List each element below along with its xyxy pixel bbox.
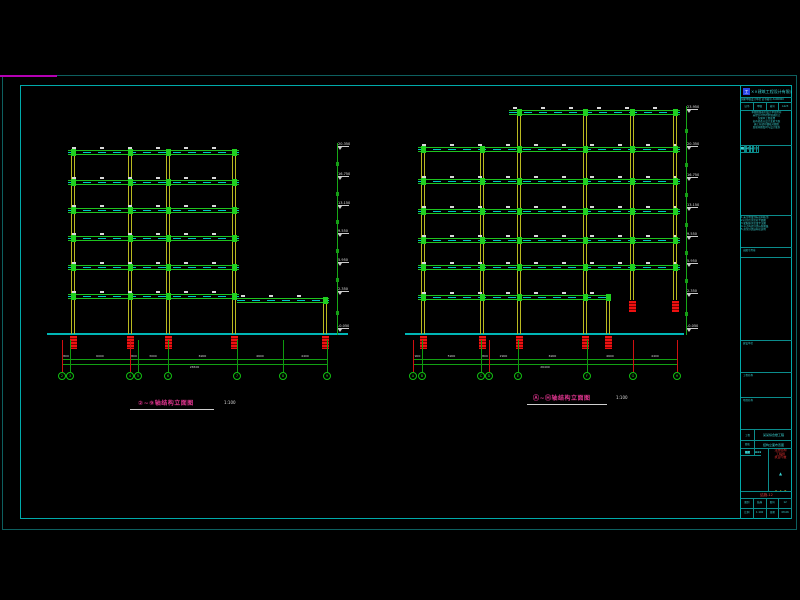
dimension-text: 2900 — [500, 355, 508, 358]
seal-box-label: 出图专用章 — [743, 249, 756, 252]
level-flag-triangle — [687, 178, 691, 181]
level-value: -0.050 — [687, 324, 703, 328]
beam-column-joint — [421, 264, 426, 271]
grid-extension-line — [422, 340, 423, 372]
bottom-cell: 12 — [779, 499, 792, 508]
drawing-number-red: 结施-12 — [741, 492, 792, 499]
beam-tick-marks — [422, 144, 676, 146]
beam-column-joint — [421, 294, 426, 301]
dimension-text: 4400 — [651, 355, 659, 358]
grid-extension-line — [413, 340, 414, 372]
level-value: 13.150 — [687, 203, 703, 207]
copyright-note-line: 发现问题及时与设计联系 — [741, 126, 792, 129]
beam-tick-marks — [422, 176, 676, 178]
beam-column-joint — [480, 264, 485, 271]
level-flag: 16.750 — [687, 173, 703, 181]
signature-table: 会 签 栏专业签名日期建筑——结构——给排水——电气——暖通——动力——总图——… — [741, 146, 792, 216]
beam-column-joint — [480, 237, 485, 244]
seal-label-row: 出图专用章 — [741, 248, 792, 258]
company-name: ××建筑工程设计有限公司 — [751, 89, 792, 94]
beam-tick-marks — [422, 206, 676, 208]
drawing-title: Ⓐ~Ⓗ轴结构立面图 — [533, 393, 591, 402]
dimension-text: 5900 — [448, 355, 456, 358]
certificate-cell: 编号 — [767, 103, 780, 110]
beam-column-joint — [606, 294, 611, 301]
name-box-label: 项目名称 — [743, 399, 753, 402]
beam-column-joint — [630, 109, 635, 116]
certificate-cell: A123 — [779, 103, 792, 110]
beam-column-joint — [673, 264, 678, 271]
hanging-column-marker — [629, 301, 636, 312]
seal-box — [741, 258, 792, 341]
beam-tick-marks — [422, 292, 607, 294]
certificate-cells: 证书甲级编号A123 — [741, 103, 792, 111]
grid-extension-line — [518, 340, 519, 372]
stamp-red-text-line: 执业印章 — [769, 456, 792, 460]
bottom-cells-row2: 比例1:100日期08.06 — [741, 509, 792, 519]
beam-column-joint — [517, 264, 522, 271]
beam-column-joint — [480, 294, 485, 301]
level-flag: -0.050 — [687, 324, 703, 332]
story-tick — [685, 223, 688, 227]
grid-bubble: A — [409, 372, 417, 380]
drawing-title-underline — [527, 404, 607, 405]
story-tick — [685, 129, 688, 133]
dimension-text: 800 — [482, 355, 488, 358]
beam-column-joint — [630, 146, 635, 153]
beam-column-joint — [421, 178, 426, 185]
level-flag-triangle — [687, 329, 691, 332]
level-value: 23.950 — [687, 105, 703, 109]
column — [630, 110, 634, 300]
title-block: 工 ××建筑工程设计有限公司 国家甲级设计单位 证书编号 A100000 证书甲… — [740, 85, 792, 519]
bottom-cell: 图号 — [767, 499, 780, 508]
grid-bubble: D — [485, 372, 493, 380]
grid-extension-line — [489, 340, 490, 372]
stamp-area: 注册结构工程师执业印章 ▲ 1.A.S 签 — [769, 449, 792, 492]
bottom-cell: 08.06 — [779, 509, 792, 519]
beam-column-joint — [673, 208, 678, 215]
bottom-cell: 比例 — [741, 509, 754, 519]
ground-line — [405, 333, 684, 335]
elevation-drawing-right: 23.95020.35016.75013.1509.5505.9502.350-… — [0, 0, 800, 600]
copyright-notes: 本图纸版权归设计单位所有未经许可不得复制或转让仅限本工程使用如有修改以设计变更为… — [741, 111, 792, 146]
column — [606, 299, 610, 334]
beam-column-joint — [517, 208, 522, 215]
level-value: 16.750 — [687, 173, 703, 177]
level-flag: 2.350 — [687, 289, 703, 297]
level-flag-triangle — [687, 294, 691, 297]
beam — [418, 147, 680, 152]
beam-column-joint — [630, 237, 635, 244]
story-tick — [685, 251, 688, 255]
grid-bubble: H — [673, 372, 681, 380]
beam-column-joint — [421, 237, 426, 244]
sheet-name-value: 结构立面布置图 — [755, 441, 792, 448]
hanging-column-marker — [672, 301, 679, 312]
beam-column-joint — [583, 109, 588, 116]
signature-table-cell: — — [750, 146, 754, 152]
beam-column-joint — [583, 178, 588, 185]
level-flag-triangle — [687, 264, 691, 267]
drawing-scale: 1:100 — [616, 395, 628, 400]
general-notes: 1.未注明梁顶标高同板顶2.柱定位详见柱平面图3.梁配筋详见梁平法图4.节点构造… — [741, 216, 792, 248]
bottom-cells-row1: 图别结施图号12 — [741, 499, 792, 509]
level-flag-triangle — [687, 147, 691, 150]
level-flag: 23.950 — [687, 105, 703, 113]
beam-column-joint — [421, 208, 426, 215]
beam-column-joint — [517, 237, 522, 244]
grid-extension-line — [633, 340, 634, 372]
dimension-text: 900 — [415, 355, 421, 358]
level-value: 20.350 — [687, 142, 703, 146]
beam-column-joint — [517, 178, 522, 185]
beam-tick-marks — [422, 262, 676, 264]
beam-column-joint — [630, 178, 635, 185]
project-name-label: 工程 — [741, 430, 755, 440]
beam — [418, 238, 680, 243]
bottom-cell: 日期 — [767, 509, 780, 519]
beam-column-joint — [517, 294, 522, 301]
signoff-role-label: 负责 — [741, 449, 755, 455]
sheet-name-label: 图名 — [741, 441, 755, 448]
beam-column-joint — [480, 146, 485, 153]
story-tick — [685, 279, 688, 283]
story-tick — [685, 193, 688, 197]
beam — [418, 209, 680, 214]
level-flag-triangle — [687, 208, 691, 211]
beam-tick-marks — [422, 235, 676, 237]
company-logo-icon: 工 — [743, 88, 750, 95]
level-flag: 5.950 — [687, 259, 703, 267]
grid-extension-line — [481, 340, 482, 372]
story-tick — [685, 163, 688, 167]
beam-column-joint — [517, 109, 522, 116]
grid-bubble: F — [583, 372, 591, 380]
beam-column-joint — [673, 146, 678, 153]
story-tick — [685, 312, 688, 316]
signoff-area: 审定×××审核×××校对×××设计×××制图×××负责××× 注册结构工程师执业… — [741, 449, 792, 492]
beam — [418, 265, 680, 270]
beam — [418, 179, 680, 184]
beam-column-joint — [480, 178, 485, 185]
level-flag: 9.550 — [687, 232, 703, 240]
grid-bubble: G — [629, 372, 637, 380]
level-value: 9.550 — [687, 232, 703, 236]
beam-column-joint — [583, 237, 588, 244]
beam-column-joint — [583, 208, 588, 215]
grid-bubble: C — [477, 372, 485, 380]
beam-tick-marks — [513, 107, 676, 109]
signature-table-row: 概算—— — [741, 146, 754, 153]
beam-column-joint — [480, 208, 485, 215]
certificate-cell: 甲级 — [754, 103, 767, 110]
certificate-cell: 证书 — [741, 103, 754, 110]
level-value: 5.950 — [687, 259, 703, 263]
level-flag-triangle — [687, 110, 691, 113]
beam-column-joint — [583, 294, 588, 301]
owner-box-label: 建设单位 — [743, 342, 753, 345]
level-flag: 13.150 — [687, 203, 703, 211]
bottom-cell: 1:100 — [754, 509, 767, 519]
column — [673, 110, 677, 300]
bottom-cell: 图别 — [741, 499, 754, 508]
project-name-value: 某某综合楼工程 — [755, 430, 792, 440]
elevation-axis-line — [686, 106, 687, 335]
signoff-name: ××× — [755, 449, 761, 455]
stamp-triangle-icon: ▲ — [779, 471, 782, 476]
bottom-cell: 结施 — [754, 499, 767, 508]
owner-box: 建设单位 — [741, 341, 792, 373]
column-footing — [605, 336, 612, 349]
beam-column-joint — [583, 146, 588, 153]
dimension-total-text: 26400 — [540, 366, 550, 369]
beam-column-joint — [673, 237, 678, 244]
level-flag-triangle — [687, 237, 691, 240]
dimension-text: 6900 — [549, 355, 557, 358]
beam-column-joint — [673, 109, 678, 116]
beam-column-joint — [421, 146, 426, 153]
name-box: 项目名称 — [741, 398, 792, 430]
beam-column-joint — [517, 146, 522, 153]
level-flag: 20.350 — [687, 142, 703, 150]
beam-column-joint — [630, 264, 635, 271]
sheet-name-row: 图名 结构立面布置图 — [741, 441, 792, 449]
dimension-line-segments — [413, 359, 677, 360]
grid-extension-line — [587, 340, 588, 372]
cad-drawing-canvas: 20.35016.75013.1509.5505.9502.350-0.0508… — [0, 0, 800, 600]
beam-column-joint — [673, 178, 678, 185]
beam-column-joint — [583, 264, 588, 271]
general-note-line: 5.其余详见结构总说明 — [741, 228, 792, 231]
project-name-row: 工程 某某综合楼工程 — [741, 430, 792, 441]
grid-bubble: B — [418, 372, 426, 380]
project-box-label: 工程名称 — [743, 374, 753, 377]
dimension-text: 4600 — [606, 355, 614, 358]
level-value: 2.350 — [687, 289, 703, 293]
signoff-row: 负责××× — [741, 449, 761, 456]
project-box: 工程名称 — [741, 373, 792, 398]
grid-extension-line — [677, 340, 678, 372]
title-block-logo-row: 工 ××建筑工程设计有限公司 — [741, 85, 792, 98]
beam — [509, 110, 680, 115]
beam-column-joint — [630, 208, 635, 215]
grid-bubble: E — [514, 372, 522, 380]
